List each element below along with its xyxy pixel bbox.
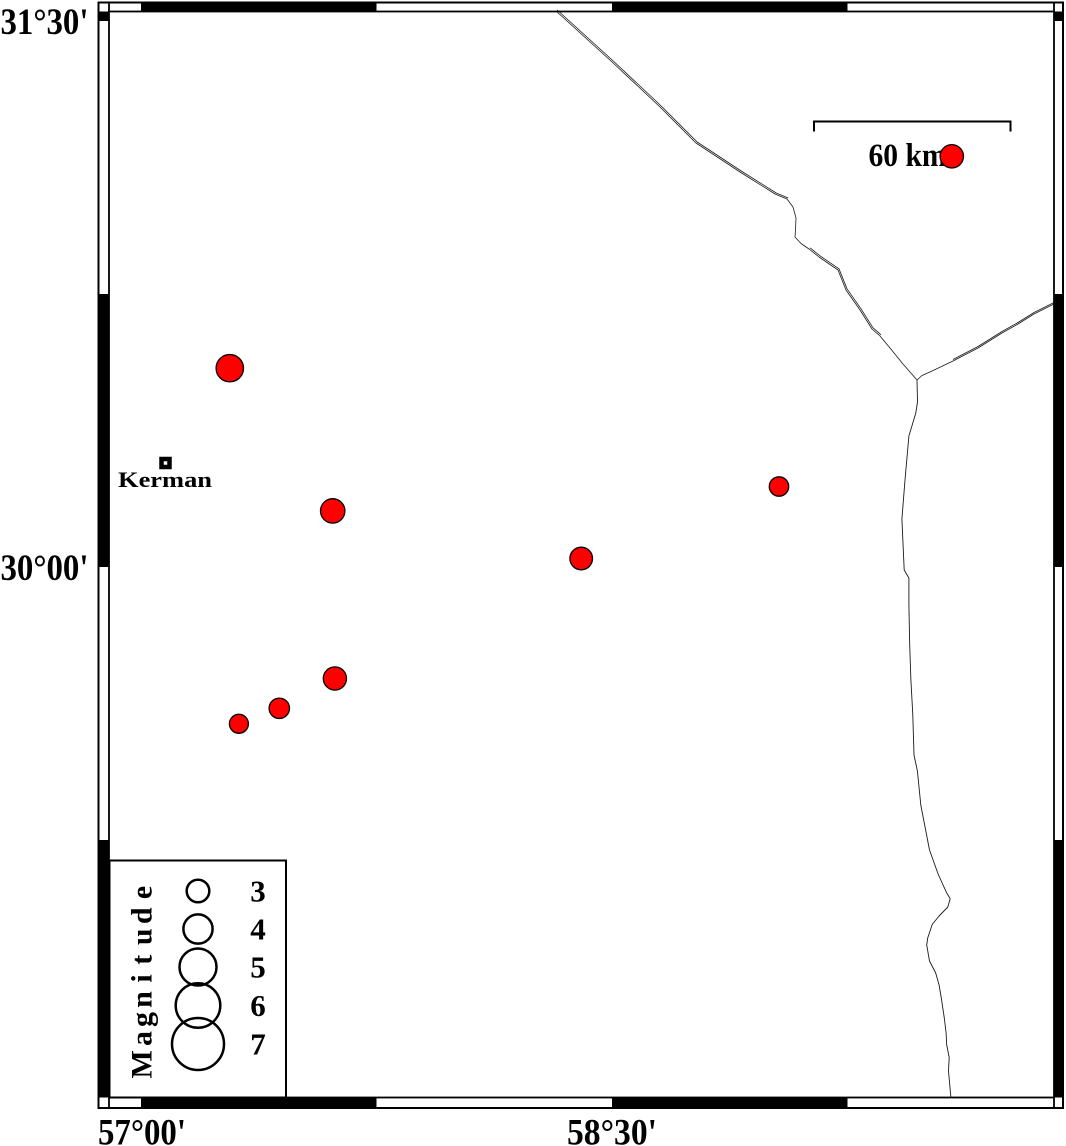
svg-text:e: e <box>126 886 159 899</box>
svg-text:t: t <box>126 955 159 965</box>
svg-text:31°30': 31°30' <box>1 2 89 43</box>
svg-text:3: 3 <box>250 874 266 909</box>
svg-text:60 km: 60 km <box>869 138 947 174</box>
svg-text:d: d <box>126 907 159 924</box>
svg-text:a: a <box>126 1031 159 1046</box>
svg-text:Kerman: Kerman <box>118 467 212 492</box>
svg-text:6: 6 <box>250 988 266 1023</box>
svg-text:30°00': 30°00' <box>1 548 89 589</box>
svg-text:g: g <box>126 1012 159 1027</box>
svg-text:n: n <box>126 991 159 1008</box>
svg-text:M: M <box>126 1050 159 1078</box>
svg-text:5: 5 <box>250 950 266 985</box>
svg-text:7: 7 <box>250 1027 266 1062</box>
svg-text:i: i <box>126 974 159 982</box>
svg-text:u: u <box>126 928 159 945</box>
svg-text:4: 4 <box>250 912 266 947</box>
svg-text:58°30': 58°30' <box>567 1113 657 1146</box>
svg-text:57°00': 57°00' <box>98 1113 186 1146</box>
